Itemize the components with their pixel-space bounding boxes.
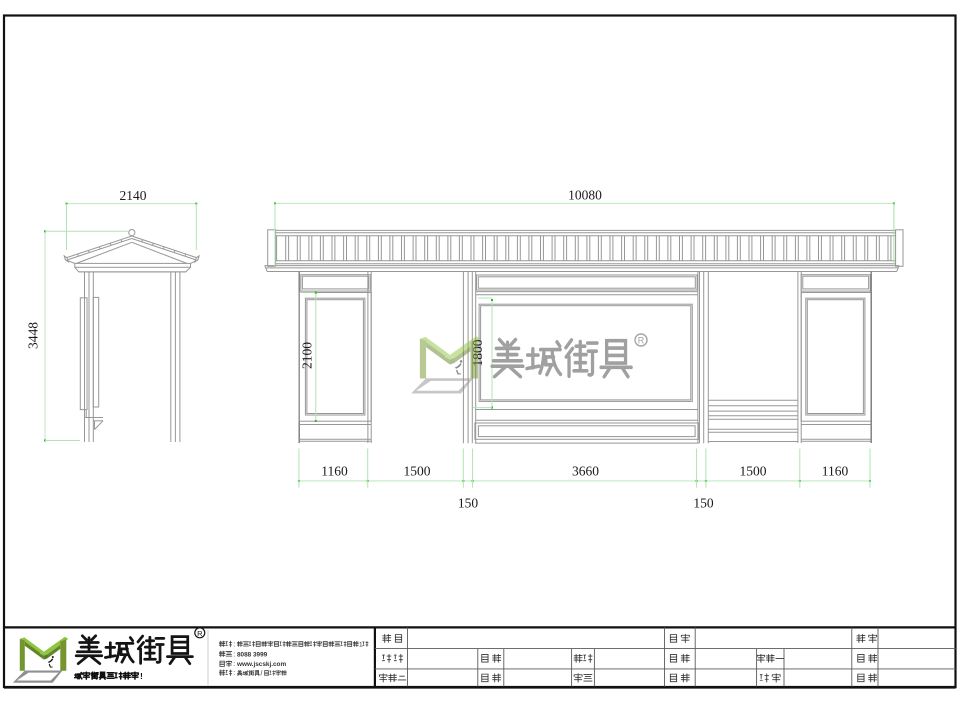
svg-text:!: ! [140, 671, 143, 681]
svg-text::: : [233, 661, 235, 668]
svg-text:2140: 2140 [120, 188, 147, 203]
svg-text::: : [233, 641, 235, 648]
svg-text:10080: 10080 [568, 188, 602, 203]
svg-text:150: 150 [458, 496, 479, 511]
svg-text:1500: 1500 [404, 464, 431, 479]
svg-text:R: R [197, 629, 203, 638]
svg-text:1160: 1160 [822, 464, 849, 479]
svg-text:3660: 3660 [572, 464, 599, 479]
svg-text:2100: 2100 [300, 342, 315, 369]
svg-text:1: 1 [359, 642, 363, 649]
svg-text::: : [233, 670, 235, 677]
svg-text:1160: 1160 [321, 464, 348, 479]
svg-text:/: / [261, 670, 263, 677]
svg-text:www.jscskj.com: www.jscskj.com [236, 661, 286, 668]
svg-text:150: 150 [693, 496, 714, 511]
svg-text:3448: 3448 [26, 322, 41, 349]
svg-text:8088 3999: 8088 3999 [237, 651, 268, 658]
svg-text:R: R [638, 335, 645, 345]
svg-text:1500: 1500 [740, 464, 767, 479]
svg-text::: : [233, 651, 235, 658]
